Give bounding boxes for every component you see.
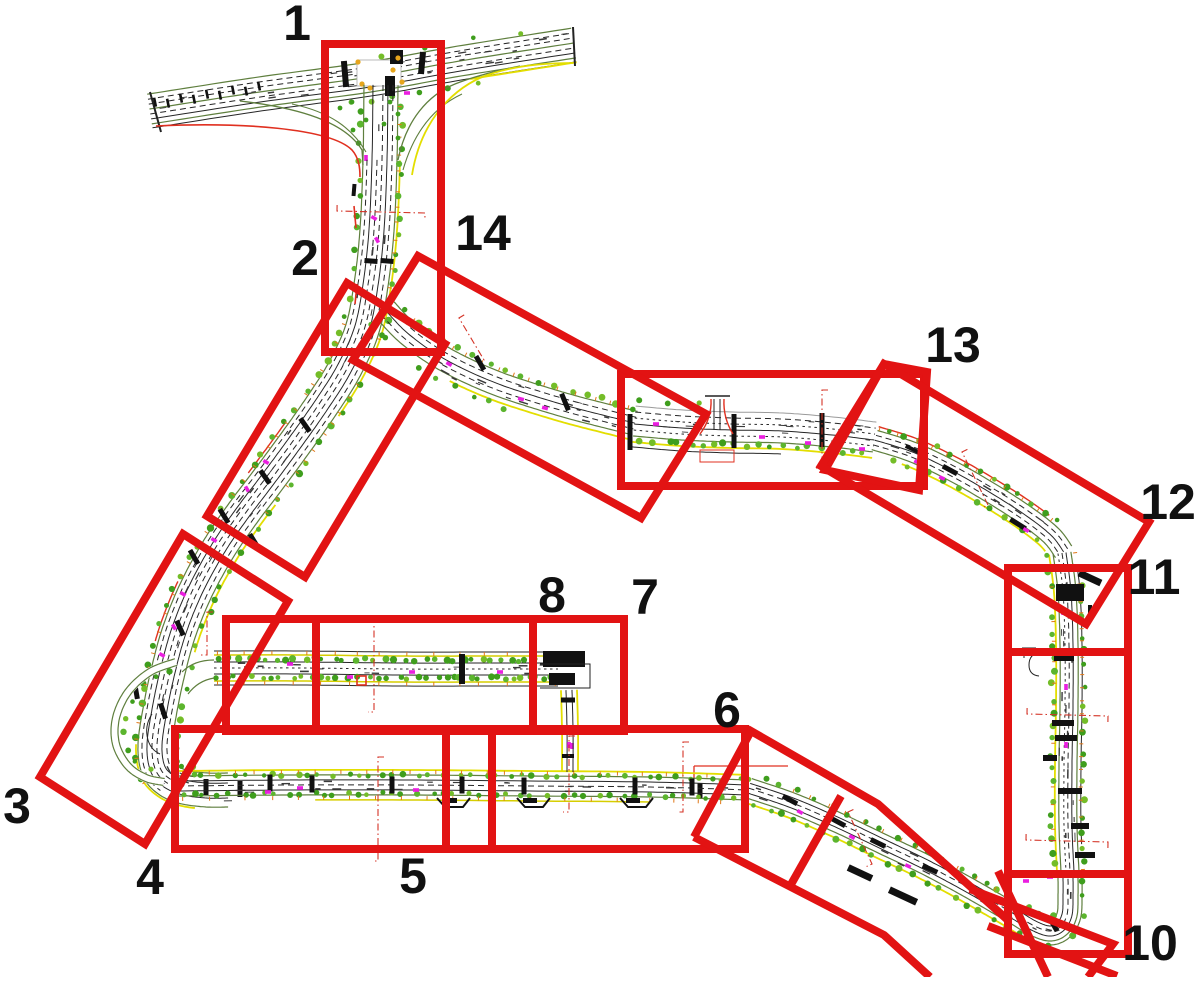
svg-text:6: 6 [713, 682, 741, 738]
svg-text:4: 4 [136, 849, 164, 905]
svg-text:3: 3 [3, 778, 31, 834]
svg-text:2: 2 [291, 230, 319, 286]
svg-text:11: 11 [1128, 549, 1181, 605]
svg-text:1: 1 [283, 0, 311, 51]
svg-text:7: 7 [631, 569, 659, 625]
svg-text:5: 5 [399, 848, 427, 904]
svg-text:10: 10 [1122, 915, 1178, 971]
svg-text:13: 13 [925, 317, 981, 373]
svg-text:8: 8 [538, 567, 566, 623]
svg-text:14: 14 [455, 205, 511, 261]
svg-text:12: 12 [1140, 474, 1196, 530]
